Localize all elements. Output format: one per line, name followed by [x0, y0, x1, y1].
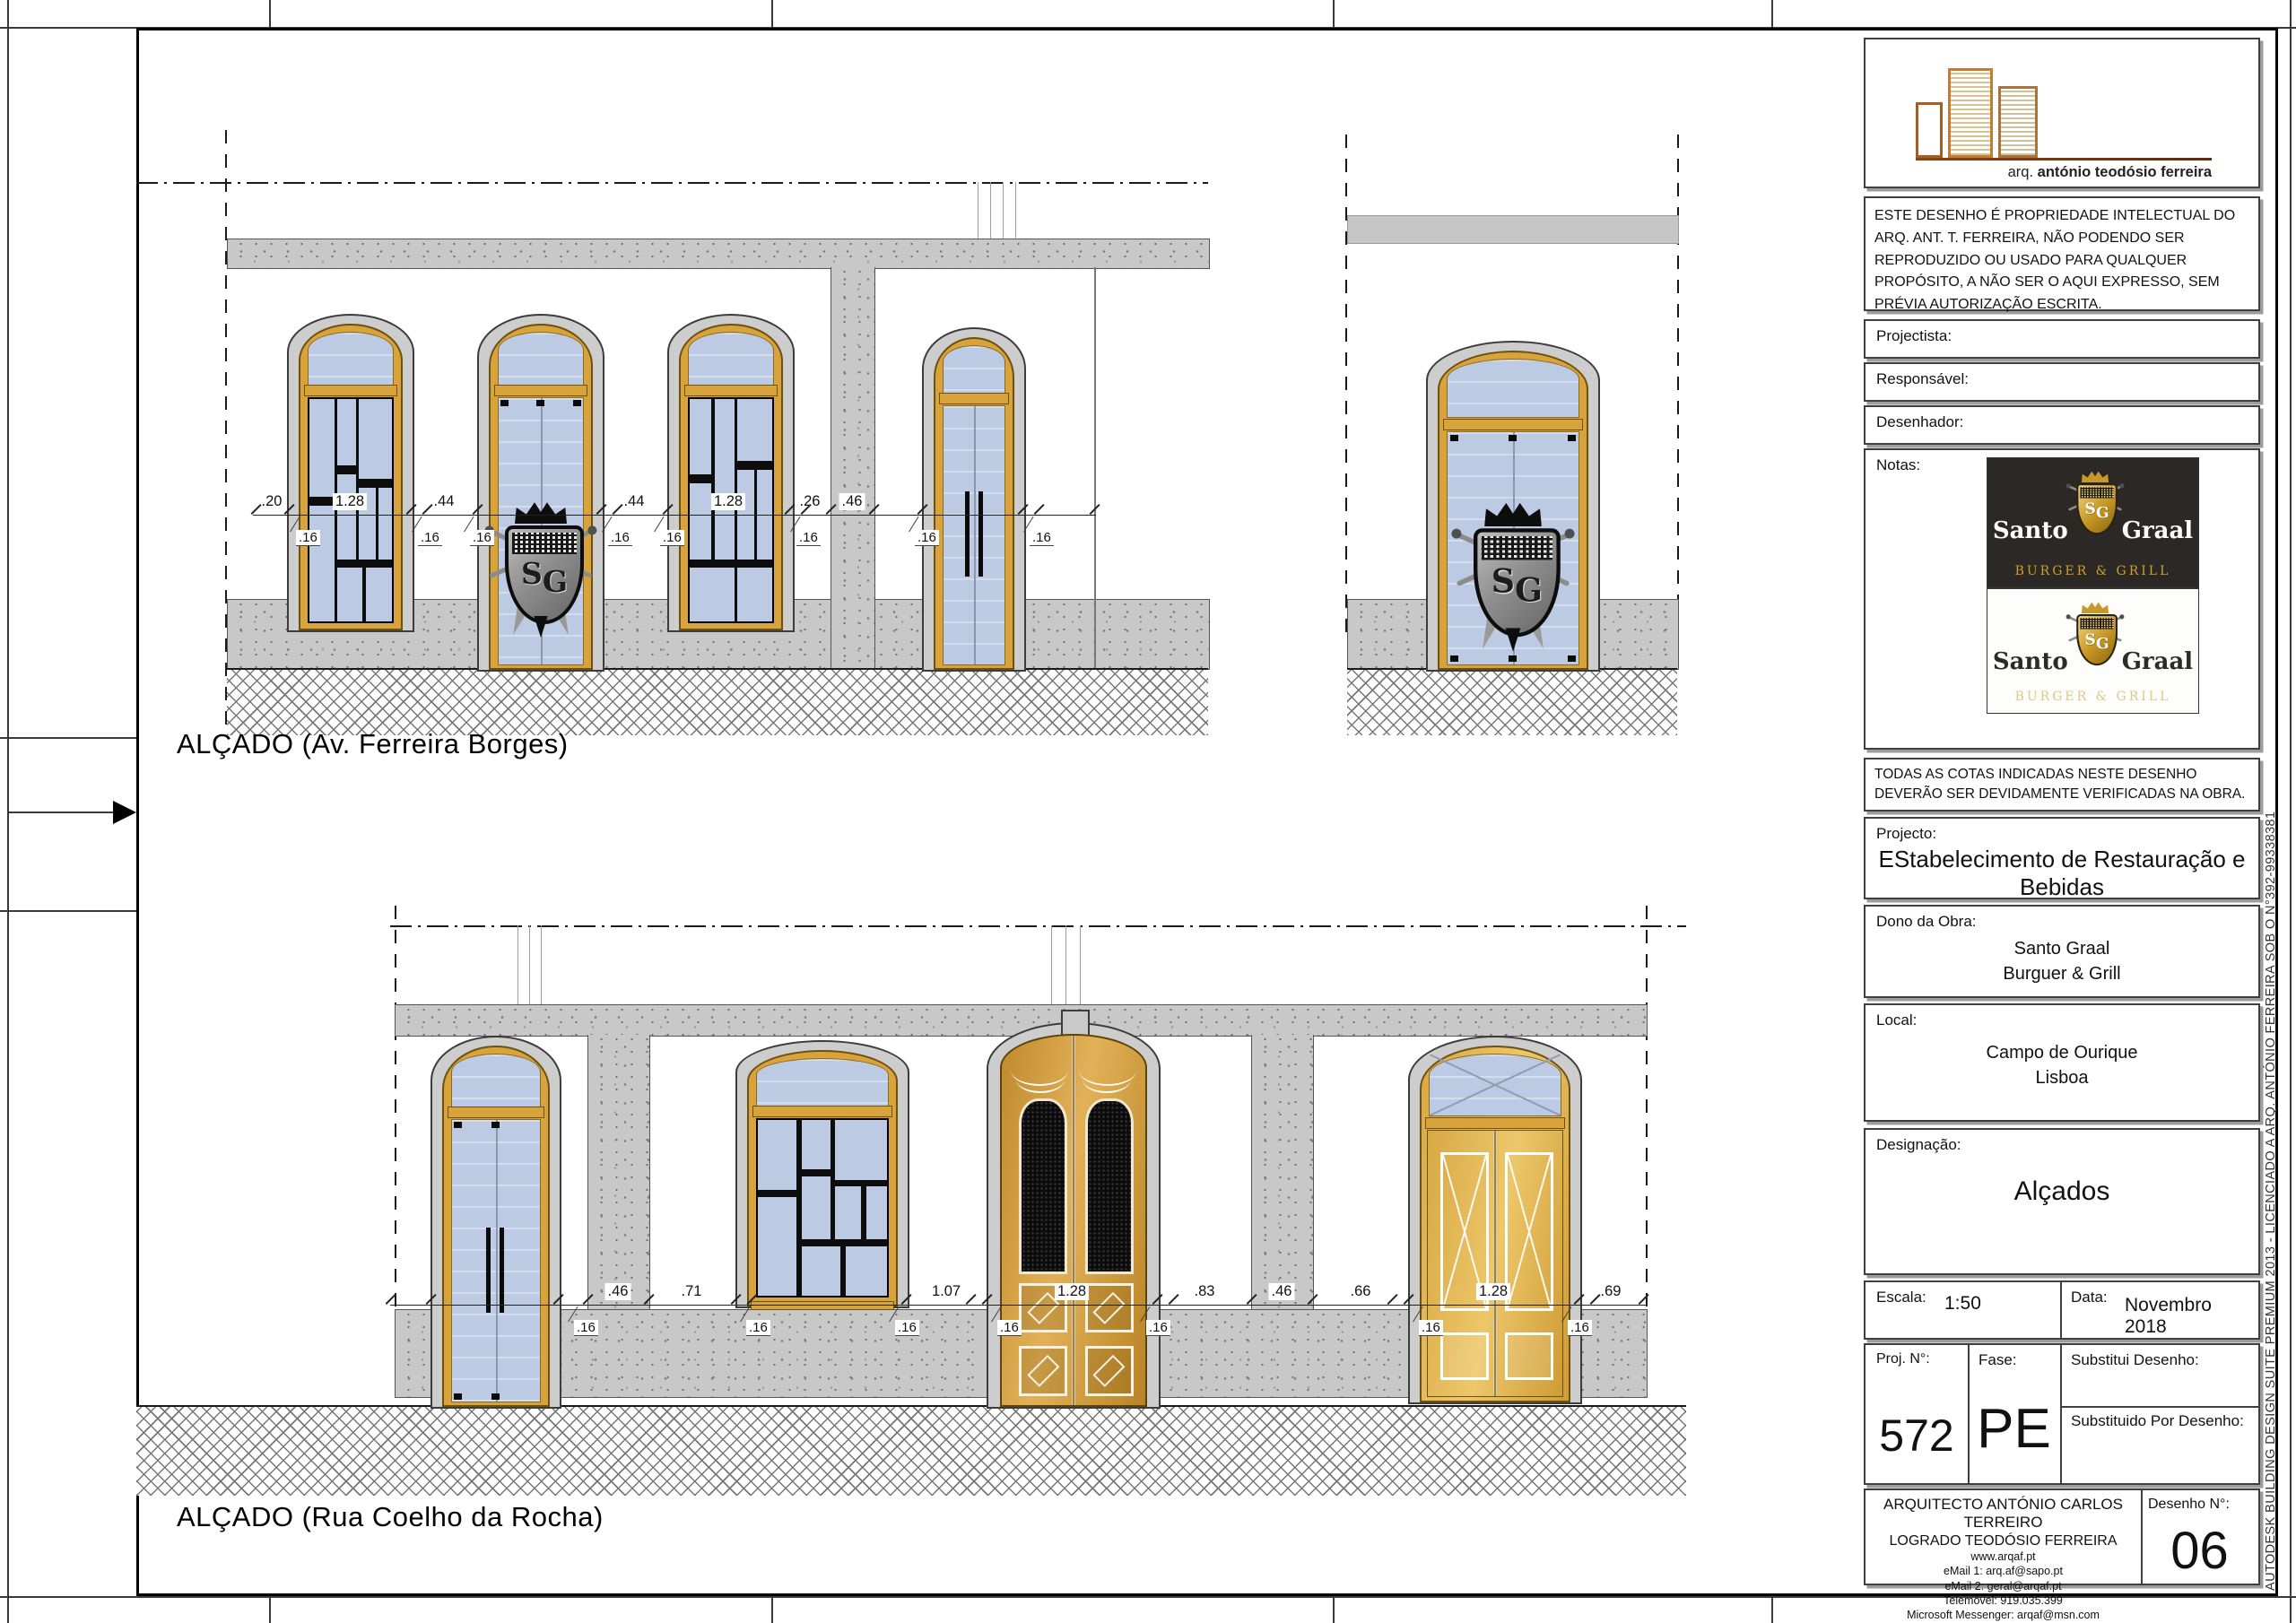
- local-box: Local: Campo de Ourique Lisboa: [1864, 1003, 2260, 1122]
- dimension-sublabel: .16: [997, 1320, 1022, 1336]
- keystone: [1061, 1010, 1090, 1037]
- local-line1: Campo de Ourique: [1865, 1043, 2258, 1063]
- door-handle: [500, 1228, 504, 1313]
- proj-n-label: Proj. N°:: [1876, 1351, 1930, 1367]
- door-handle: [486, 1228, 491, 1313]
- transom-glass: [498, 332, 584, 386]
- fold-tick: [1333, 0, 1335, 27]
- glazing-pane: [835, 1186, 861, 1239]
- projection-line: [517, 925, 518, 1004]
- glazing-pane: [758, 1120, 796, 1190]
- responsavel-label: Responsável:: [1876, 370, 1969, 388]
- section-dashdot-line: [390, 925, 1686, 927]
- glazing-pane: [690, 483, 711, 559]
- window-surround: [287, 314, 414, 632]
- designacao-box: Designação: Alçados: [1864, 1128, 2260, 1275]
- glazing-pane: [366, 568, 392, 621]
- center-mark-arrow: [113, 801, 136, 824]
- emblem-letter-g: G: [543, 564, 568, 599]
- dimension-sublabel: .16: [608, 530, 632, 546]
- dono-da-obra-box: Dono da Obra: Santo Graal Burguer & Gril…: [1864, 905, 2260, 998]
- projection-line: [1003, 182, 1004, 239]
- pavement-hatch: [1347, 668, 1677, 735]
- proj-fase-row: Proj. N°: 572 Fase: PE Substitui Desenho…: [1864, 1343, 2260, 1485]
- dono-line2: Burguer & Grill: [1865, 964, 2258, 985]
- dimension-label: .46: [1269, 1283, 1295, 1300]
- architect-website: www.arqaf.pt: [1865, 1549, 2141, 1564]
- projection-line: [978, 182, 978, 239]
- dimension-sublabel: .16: [895, 1320, 919, 1336]
- glazing-pane: [690, 568, 735, 621]
- dono-line1: Santo Graal: [1865, 939, 2258, 959]
- entrance-door-surround: SG: [1426, 341, 1600, 672]
- elevation-rua-coelho-da-rocha: .46 .71 1.07 1.28 .83 .46 .66 1.28 .69 .…: [136, 888, 1686, 1533]
- logo-baseline: [1916, 158, 2212, 161]
- shield-chief-pattern: [2080, 618, 2113, 629]
- glazing-pane: [690, 399, 711, 474]
- center-mark-line: [7, 811, 115, 813]
- stone-pier: [1251, 1035, 1314, 1309]
- dimension-sublabel: .16: [1030, 530, 1054, 546]
- transom-bar: [684, 385, 778, 396]
- brand-name-right: Graal: [2122, 517, 2193, 544]
- patch-fitting: [491, 1393, 500, 1400]
- dimension-label: 1.28: [1055, 1283, 1089, 1300]
- fold-tick: [771, 0, 773, 27]
- crown-icon: [515, 501, 567, 524]
- pavement-hatch: [136, 1405, 1686, 1496]
- door-handle: [965, 491, 970, 577]
- dimension-sublabel: .16: [796, 530, 821, 546]
- verification-note: TODAS AS COTAS INDICADAS NESTE DESENHO D…: [1874, 765, 2251, 805]
- projection-line: [1015, 182, 1016, 239]
- dimension-line: .46 .71 1.07 1.28 .83 .46 .66 1.28 .69 .…: [390, 1305, 1646, 1306]
- dimension-sublabel: .16: [746, 1320, 770, 1336]
- projection-line: [990, 182, 991, 239]
- shield-chief-pattern: [1482, 536, 1552, 560]
- fold-mark: [0, 737, 136, 739]
- proj-n-cell: Proj. N°: 572: [1865, 1345, 1970, 1483]
- building-icon: [1916, 102, 1943, 158]
- patch-fitting: [573, 400, 581, 406]
- elevation-title: ALÇADO (Rua Coelho da Rocha): [177, 1501, 604, 1533]
- escala-data-row: Escala: 1:50 Data: Novembro 2018: [1864, 1280, 2260, 1340]
- shield-icon: SG: [2076, 614, 2118, 665]
- transom-fold-lines: [1430, 1055, 1561, 1115]
- glazing-pane: [802, 1246, 840, 1296]
- substituido-label: Substituido Por Desenho:: [2071, 1412, 2244, 1430]
- dimension-label: .20: [259, 493, 285, 510]
- fase-cell: Fase: PE: [1968, 1345, 2062, 1483]
- copyright-text: ESTE DESENHO É PROPRIEDADE INTELECTUAL D…: [1874, 205, 2251, 317]
- fold-tick: [1333, 1596, 1335, 1623]
- raised-panel: [1019, 1346, 1067, 1395]
- patch-fitting: [500, 400, 509, 406]
- patch-fitting: [1509, 655, 1517, 662]
- sg-shield-emblem: SG: [496, 501, 586, 636]
- fold-mark: [0, 910, 136, 912]
- brand-logo-dark: Santo SG Graal BU: [1987, 457, 2199, 588]
- desenhador-label: Desenhador:: [1876, 413, 1963, 431]
- escala-label: Escala:: [1876, 1289, 1926, 1306]
- brand-name-left: Santo: [1993, 648, 2068, 675]
- patch-fitting: [536, 400, 544, 406]
- glazing-grid: [308, 397, 394, 623]
- brand-tagline: BURGER & GRILL: [1987, 690, 2198, 704]
- carved-garland: [1083, 1065, 1131, 1093]
- brand-name-left: Santo: [1993, 517, 2068, 544]
- projection-line: [541, 925, 542, 1004]
- transom-bar: [304, 385, 397, 396]
- fase-value: PE: [1968, 1397, 2060, 1461]
- dimension-line: .20 1.28 .44 .44 1.28 .26 .46 .16 .16 .1…: [253, 515, 1096, 516]
- emblem-letter-g: G: [1515, 571, 1543, 610]
- entrance-door-surround: SG: [477, 314, 604, 672]
- transom-glass: [451, 1054, 541, 1107]
- wood-door-leaves: [1000, 1034, 1147, 1407]
- carved-garland: [1016, 1065, 1065, 1093]
- data-label: Data:: [2071, 1289, 2108, 1306]
- stone-pier: [587, 1035, 650, 1309]
- dimension-label: .71: [679, 1283, 705, 1300]
- glass-door: [451, 1119, 541, 1402]
- crown-icon: [2082, 602, 2109, 613]
- sg-shield-emblem: SG: [1464, 502, 1562, 650]
- elevation-av-ferreira-borges: SG: [136, 126, 1238, 780]
- transom-glass: [756, 1058, 889, 1107]
- patch-fitting: [1450, 435, 1458, 441]
- dimension-tick: [1169, 1294, 1179, 1305]
- raised-panel: [1085, 1346, 1134, 1395]
- glazing-pane: [337, 399, 355, 465]
- escala-value: 1:50: [1944, 1293, 1981, 1315]
- panel-door-surround: [1408, 1036, 1582, 1404]
- pavement-hatch: [227, 668, 1208, 735]
- verification-note-box: TODAS AS COTAS INDICADAS NESTE DESENHO D…: [1864, 758, 2260, 811]
- dimension-label: 1.07: [929, 1283, 963, 1300]
- building-icon: [1948, 68, 1993, 158]
- dimension-sublabel: .16: [1568, 1320, 1592, 1336]
- glazing-pane: [337, 474, 355, 559]
- door-center-stile: [1493, 1131, 1497, 1396]
- dimension-label: 1.28: [711, 493, 745, 510]
- raised-panel: [1505, 1332, 1553, 1380]
- desenho-n-value: 06: [2141, 1521, 2258, 1581]
- fold-tick: [771, 1596, 773, 1623]
- door-mullion: [496, 1120, 498, 1402]
- glazing-pane: [309, 506, 335, 621]
- dimension-label: .83: [1192, 1283, 1218, 1300]
- window-surround: [735, 1040, 909, 1308]
- projectista-box: Projectista:: [1864, 319, 2260, 359]
- transom-glass: [943, 345, 1005, 394]
- mesh-panel: [1085, 1098, 1134, 1274]
- dimension-label: .69: [1598, 1283, 1624, 1300]
- glazing-pane: [359, 399, 392, 479]
- glass-door-surround: [430, 1036, 561, 1409]
- copyright-box: ESTE DESENHO É PROPRIEDADE INTELECTUAL D…: [1864, 196, 2260, 311]
- glazing-pane: [835, 1120, 887, 1180]
- glazing-pane: [715, 399, 735, 501]
- glazing-pane: [737, 399, 772, 461]
- brand-shield: SG: [2070, 471, 2120, 546]
- local-line2: Lisboa: [1865, 1068, 2258, 1089]
- dimension-tick: [1034, 504, 1045, 515]
- fold-tick: [1771, 0, 1773, 27]
- shield-chief-pattern: [512, 533, 577, 554]
- door-gold-frame: SG: [1438, 351, 1588, 670]
- transom-bar: [448, 1107, 544, 1118]
- glazing-pane: [309, 399, 335, 497]
- glass-door: SG: [1447, 431, 1579, 665]
- transom-bar: [1425, 1117, 1565, 1129]
- shield-icon: SG: [2076, 483, 2118, 534]
- architect-phone: Telemóvel: 919.035.399: [1865, 1593, 2141, 1608]
- window-gold-frame: [679, 324, 783, 630]
- emblem-letter-s: S: [2084, 499, 2095, 517]
- emblem-letter-s: S: [521, 556, 543, 591]
- dimension-label: .46: [605, 1283, 631, 1300]
- emblem-letter-s: S: [2084, 630, 2095, 648]
- transom-glass: [308, 332, 394, 386]
- window-sill: [751, 1301, 894, 1310]
- window-surround: [667, 314, 795, 632]
- raised-panel: [1085, 1283, 1134, 1332]
- door-center-stile: [1072, 1036, 1075, 1405]
- door-gold-frame: SG: [489, 324, 593, 670]
- architect-contact-box: ARQUITECTO ANTÓNIO CARLOS TERREIRO LOGRA…: [1864, 1488, 2260, 1585]
- glazing-grid: [688, 397, 774, 623]
- crown-icon: [2082, 471, 2109, 482]
- emblem-letter-g: G: [2096, 634, 2109, 652]
- dimension-label: .44: [622, 493, 648, 510]
- transom-bar: [939, 393, 1009, 404]
- glazing-pane: [337, 568, 362, 621]
- dimension-sublabel: .16: [574, 1320, 598, 1336]
- dimension-sublabel: .16: [296, 530, 320, 546]
- projectista-label: Projectista:: [1876, 327, 1952, 345]
- data-value: Novembro 2018: [2125, 1295, 2258, 1338]
- door-mullion: [974, 406, 976, 664]
- cornice-band: [1347, 215, 1679, 244]
- fold-tick: [1771, 1596, 1773, 1623]
- brand-logo-light: Santo SG Graal BU: [1987, 588, 2199, 714]
- escala-cell: Escala: 1:50: [1865, 1282, 2062, 1338]
- dimension-sublabel: .16: [470, 530, 494, 546]
- projection-line: [529, 925, 530, 1004]
- proj-n-value: 572: [1865, 1410, 1968, 1462]
- window-gold-frame: [747, 1050, 898, 1306]
- architect-logo: arq. antónio teodósio ferreira: [1916, 50, 2212, 178]
- wood-door-leaves: [1427, 1130, 1563, 1397]
- desenho-n-cell: Desenho N°: 06: [2141, 1490, 2258, 1584]
- dimension-sublabel: .16: [660, 530, 684, 546]
- glazing-pane: [378, 488, 392, 559]
- brand-tagline: BURGER & GRILL: [1987, 564, 2198, 578]
- desenhador-box: Desenhador:: [1864, 405, 2260, 445]
- fase-label: Fase:: [1979, 1351, 2017, 1369]
- transom-glass: [688, 332, 774, 386]
- data-cell: Data: Novembro 2018: [2060, 1282, 2258, 1338]
- dimension-label: .46: [839, 493, 865, 510]
- door-gold-frame: [1420, 1046, 1570, 1402]
- architect-name-line1: ARQUITECTO ANTÓNIO CARLOS TERREIRO: [1865, 1496, 2141, 1532]
- dimension-label: .44: [431, 493, 457, 510]
- patch-fitting: [491, 1122, 500, 1128]
- ornate-door-surround: [987, 1022, 1161, 1409]
- patch-fitting: [454, 1393, 462, 1400]
- designacao-label: Designação:: [1876, 1136, 1961, 1154]
- door-gold-frame: [442, 1046, 550, 1407]
- shield-chief-pattern: [2080, 487, 2113, 498]
- dimension-label: 1.28: [333, 493, 367, 510]
- substituido-cell: Substituido Por Desenho:: [2060, 1406, 2258, 1483]
- emblem-letter-s: S: [1492, 562, 1515, 601]
- stone-pier: [831, 267, 875, 668]
- glazing-pane: [846, 1246, 887, 1296]
- patch-fitting: [1509, 435, 1517, 441]
- local-label: Local:: [1876, 1011, 1917, 1029]
- elevation-fragment: SG: [1345, 126, 1679, 744]
- notas-label: Notas:: [1876, 456, 1920, 474]
- glazing-pane: [715, 510, 735, 560]
- projecto-label: Projecto:: [1876, 825, 1936, 843]
- plot-stamp-text: AUTODESK BUILDING DESIGN SUITE PREMIUM 2…: [2264, 924, 2282, 1591]
- x-braced-panel: [1505, 1152, 1553, 1312]
- architect-email2: eMail 2: geral@arqaf.pt: [1865, 1579, 2141, 1593]
- responsavel-box: Responsável:: [1864, 362, 2260, 402]
- elevation-title: ALÇADO (Av. Ferreira Borges): [177, 728, 569, 760]
- window-gold-frame: [299, 324, 403, 630]
- glazing-grid: [756, 1118, 889, 1298]
- wall-corner-edge: [1094, 267, 1096, 668]
- dono-label: Dono da Obra:: [1876, 913, 1977, 931]
- substitui-cell: Substitui Desenho:: [2060, 1345, 2258, 1408]
- patch-fitting: [1568, 435, 1576, 441]
- architect-email1: eMail 1: arq.af@sapo.pt: [1865, 1564, 2141, 1578]
- glass-door: [943, 405, 1005, 665]
- patch-fitting: [454, 1122, 462, 1128]
- crown-icon: [1484, 502, 1542, 527]
- transom-bar: [752, 1106, 892, 1117]
- patch-fitting: [1568, 655, 1576, 662]
- boundary-dashed-line: [1677, 135, 1679, 637]
- architect-info-cell: ARQUITECTO ANTÓNIO CARLOS TERREIRO LOGRA…: [1865, 1490, 2143, 1584]
- glazing-pane: [758, 1197, 796, 1296]
- projecto-value: EStabelecimento de Restauração e Bebidas: [1865, 846, 2258, 901]
- notas-box: Notas: Santo SG: [1864, 448, 2260, 750]
- cornice-band: [227, 239, 1210, 269]
- glazing-pane: [866, 1186, 887, 1239]
- door-handle: [978, 491, 983, 577]
- projecto-box: Projecto: EStabelecimento de Restauração…: [1864, 817, 2260, 899]
- trim-line-right: [2290, 0, 2292, 1623]
- dimension-sublabel: .16: [1419, 1320, 1443, 1336]
- transom-glass: [1429, 1054, 1561, 1116]
- door-gold-frame: [934, 337, 1014, 670]
- dimension-label: .26: [797, 493, 823, 510]
- boundary-dashed-line: [1345, 135, 1347, 637]
- sg-shield-emblem: SG: [2072, 471, 2118, 541]
- dimension-sublabel: .16: [1146, 1320, 1170, 1336]
- glazing-pane: [737, 568, 772, 621]
- substitui-label: Substitui Desenho:: [2071, 1351, 2199, 1369]
- side-door-surround: [922, 327, 1026, 672]
- fold-tick: [269, 0, 271, 27]
- glazing-pane: [802, 1176, 831, 1240]
- architect-name-line2: LOGRADO TEODÓSIO FERREIRA: [1865, 1533, 2141, 1549]
- patch-fitting: [1450, 655, 1458, 662]
- emblem-letter-g: G: [2096, 503, 2109, 521]
- raised-panel: [1440, 1332, 1489, 1380]
- drawing-sheet: SG: [0, 0, 2296, 1623]
- brand-name-right: Graal: [2122, 648, 2193, 675]
- transom-glass: [1447, 359, 1579, 418]
- transom-bar: [494, 385, 587, 396]
- logo-caption-name: antónio teodósio ferreira: [2038, 164, 2212, 180]
- desenho-n-label: Desenho N°:: [2148, 1497, 2230, 1513]
- fold-tick: [269, 1596, 271, 1623]
- designacao-value: Alçados: [1865, 1176, 2258, 1207]
- sg-shield-emblem: SG: [2072, 602, 2118, 672]
- building-icon: [1998, 86, 2038, 158]
- brand-shield: SG: [2070, 602, 2120, 677]
- glazing-pane: [802, 1120, 831, 1169]
- dimension-tick: [1387, 1294, 1398, 1305]
- architect-logo-box: arq. antónio teodósio ferreira: [1864, 38, 2260, 188]
- logo-caption-prefix: arq.: [2008, 164, 2033, 180]
- architect-messenger: Microsoft Messenger: arqaf@msn.com: [1865, 1608, 2141, 1622]
- dimension-sublabel: .16: [418, 530, 442, 546]
- mesh-panel: [1019, 1098, 1067, 1274]
- glass-door: SG: [498, 397, 584, 665]
- dimension-label: .66: [1348, 1283, 1374, 1300]
- dimension-tick: [966, 1294, 977, 1305]
- shield-icon: SG: [1474, 528, 1561, 637]
- section-dashdot-line: [136, 182, 1208, 184]
- dimension-sublabel: .16: [915, 530, 939, 546]
- shield-icon: SG: [505, 525, 584, 624]
- transom-bar: [1443, 419, 1583, 430]
- dimension-label: 1.28: [1476, 1283, 1510, 1300]
